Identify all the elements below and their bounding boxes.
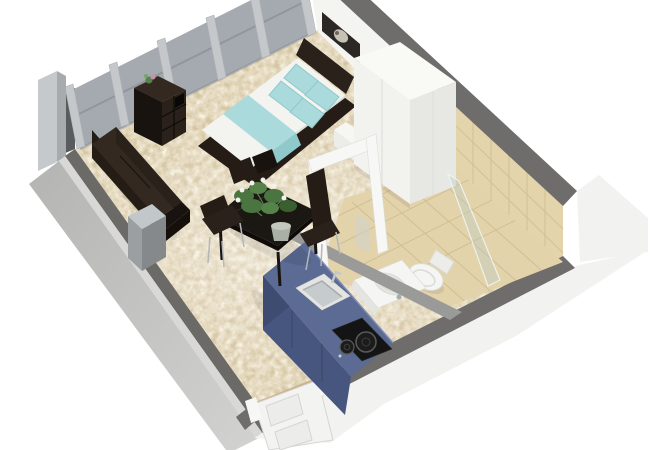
plant-pot-rim	[271, 222, 291, 230]
burner-small	[340, 340, 354, 354]
burner-large	[356, 332, 376, 352]
washbasin-faucet	[397, 295, 402, 300]
picture-flower-center	[335, 31, 339, 35]
floorplan-render	[0, 0, 650, 450]
cooktop-control	[339, 355, 342, 358]
exterior-corner-east	[577, 175, 648, 262]
corner-post-side	[57, 71, 66, 162]
corner-post	[38, 71, 57, 171]
floorplan-stage	[0, 0, 650, 450]
